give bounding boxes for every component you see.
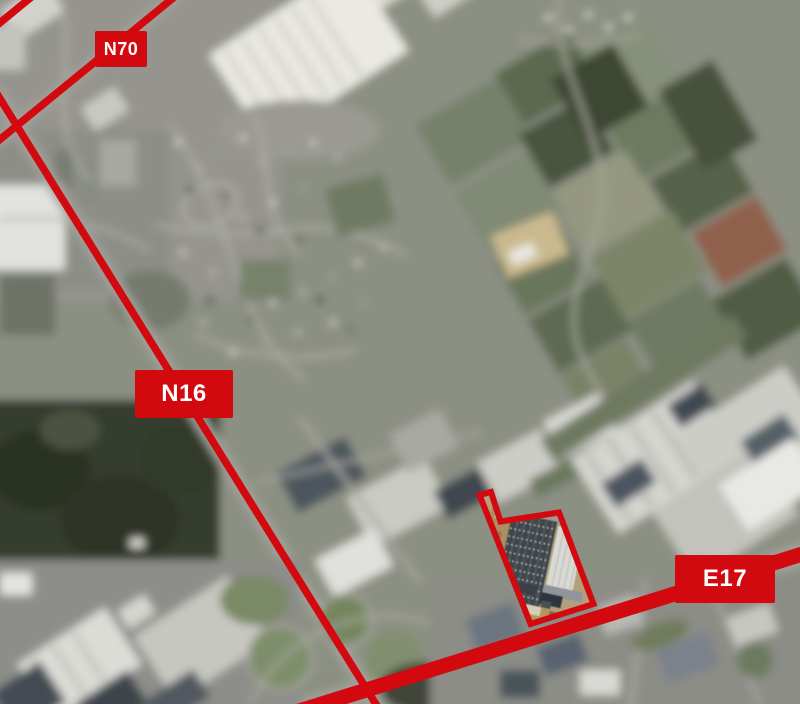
road-label-n70: N70 bbox=[95, 31, 147, 67]
road-label-e17: E17 bbox=[675, 555, 775, 603]
road-label-n16: N16 bbox=[135, 370, 233, 418]
map-canvas: N70 N16 E17 bbox=[0, 0, 800, 704]
